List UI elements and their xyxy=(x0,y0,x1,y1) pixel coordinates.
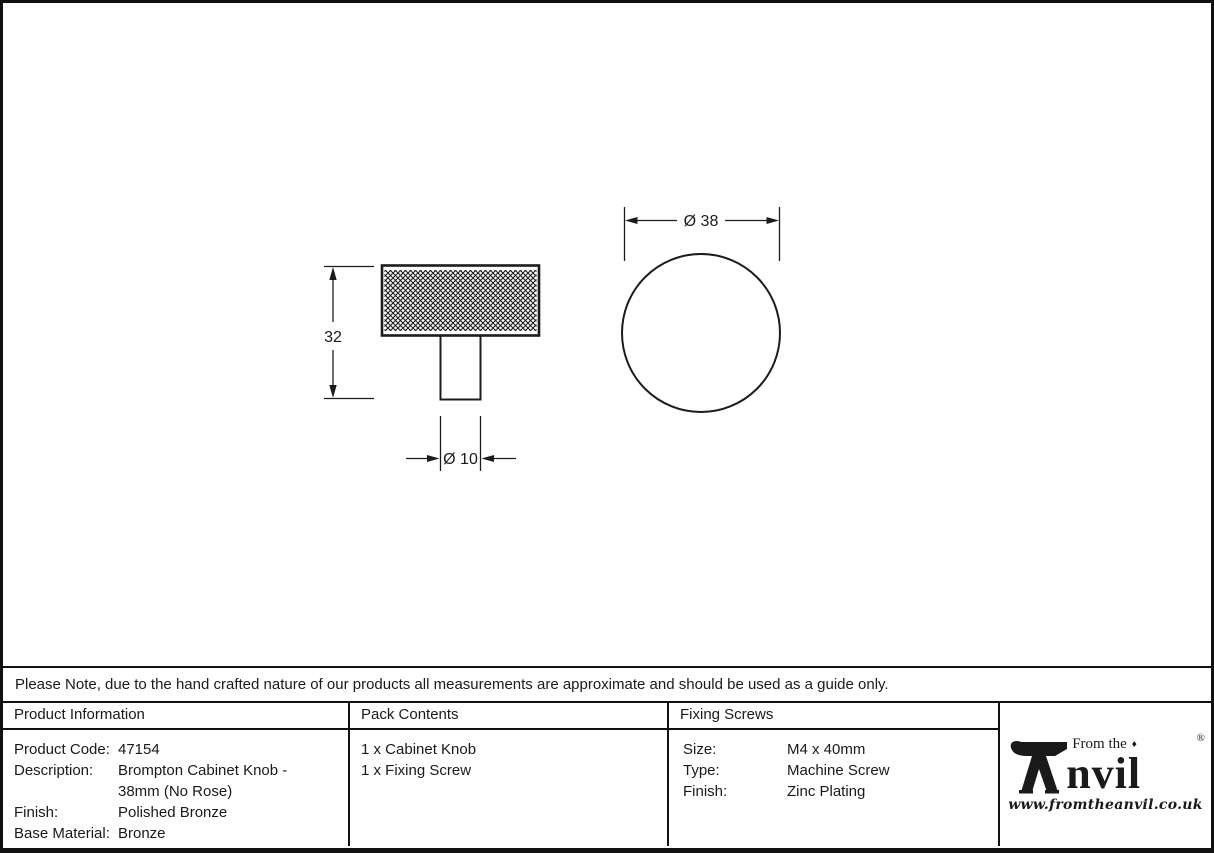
brand-logo-cell: nvil From the♦ ® www.fromtheanvil.co.uk xyxy=(1000,703,1211,846)
pack-contents-header: Pack Contents xyxy=(350,703,669,730)
screw-finish-row: Finish: Zinc Plating xyxy=(683,781,998,802)
brand-wordmark: nvil From the♦ ® xyxy=(1008,736,1203,794)
knob-front-circle xyxy=(622,254,780,412)
dim-height-label: 32 xyxy=(324,329,342,346)
product-information-header: Product Information xyxy=(3,703,350,730)
registered-trademark-icon: ® xyxy=(1196,732,1204,744)
screw-type-row: Type: Machine Screw xyxy=(683,760,998,781)
brand-name-rest: nvil xyxy=(1066,754,1141,794)
dim-knob-label: Ø 38 xyxy=(684,213,719,230)
info-table: Product Information Pack Contents Fixing… xyxy=(3,703,1211,846)
diamond-icon: ♦ xyxy=(1127,739,1137,750)
product-information-body: Product Code: 47154 Description: Brompto… xyxy=(3,730,350,846)
pack-item: 1 x Fixing Screw xyxy=(361,760,667,781)
dim-stem-arrow-right xyxy=(427,455,440,462)
spec-sheet: 32 Ø 10 Ø 38 Please Note, due to the han… xyxy=(0,0,1214,853)
knurl-pattern xyxy=(385,270,537,331)
note-text: Please Note, due to the hand crafted nat… xyxy=(15,676,889,693)
technical-drawing: 32 Ø 10 Ø 38 xyxy=(3,3,1211,666)
dim-stem-label: Ø 10 xyxy=(443,451,478,468)
screw-size-row: Size: M4 x 40mm xyxy=(683,739,998,760)
brand-logo: nvil From the♦ ® www.fromtheanvil.co.uk xyxy=(1008,736,1203,813)
dim-stem-arrow-left xyxy=(482,455,495,462)
brand-prefix: From the♦ xyxy=(1072,736,1137,753)
product-code-row: Product Code: 47154 xyxy=(14,739,348,760)
brand-website: www.fromtheanvil.co.uk xyxy=(1008,797,1203,813)
dim-height-arrow-down xyxy=(329,385,336,398)
pack-item: 1 x Cabinet Knob xyxy=(361,739,667,760)
pack-contents-body: 1 x Cabinet Knob 1 x Fixing Screw xyxy=(350,730,669,846)
note-bar: Please Note, due to the hand crafted nat… xyxy=(3,666,1211,703)
dim-height-arrow-up xyxy=(329,267,336,280)
anvil-a-icon xyxy=(1008,736,1070,794)
dim-knob-arrow-left xyxy=(625,217,638,224)
finish-row: Finish: Polished Bronze xyxy=(14,802,348,823)
base-material-row: Base Material: Bronze xyxy=(14,823,348,844)
fixing-screws-body: Size: M4 x 40mm Type: Machine Screw Fini… xyxy=(669,730,1000,846)
fixing-screws-header: Fixing Screws xyxy=(669,703,1000,730)
knob-stem-outline xyxy=(441,335,481,400)
description-row: Description: Brompton Cabinet Knob - 38m… xyxy=(14,760,348,802)
dim-knob-arrow-right xyxy=(767,217,780,224)
